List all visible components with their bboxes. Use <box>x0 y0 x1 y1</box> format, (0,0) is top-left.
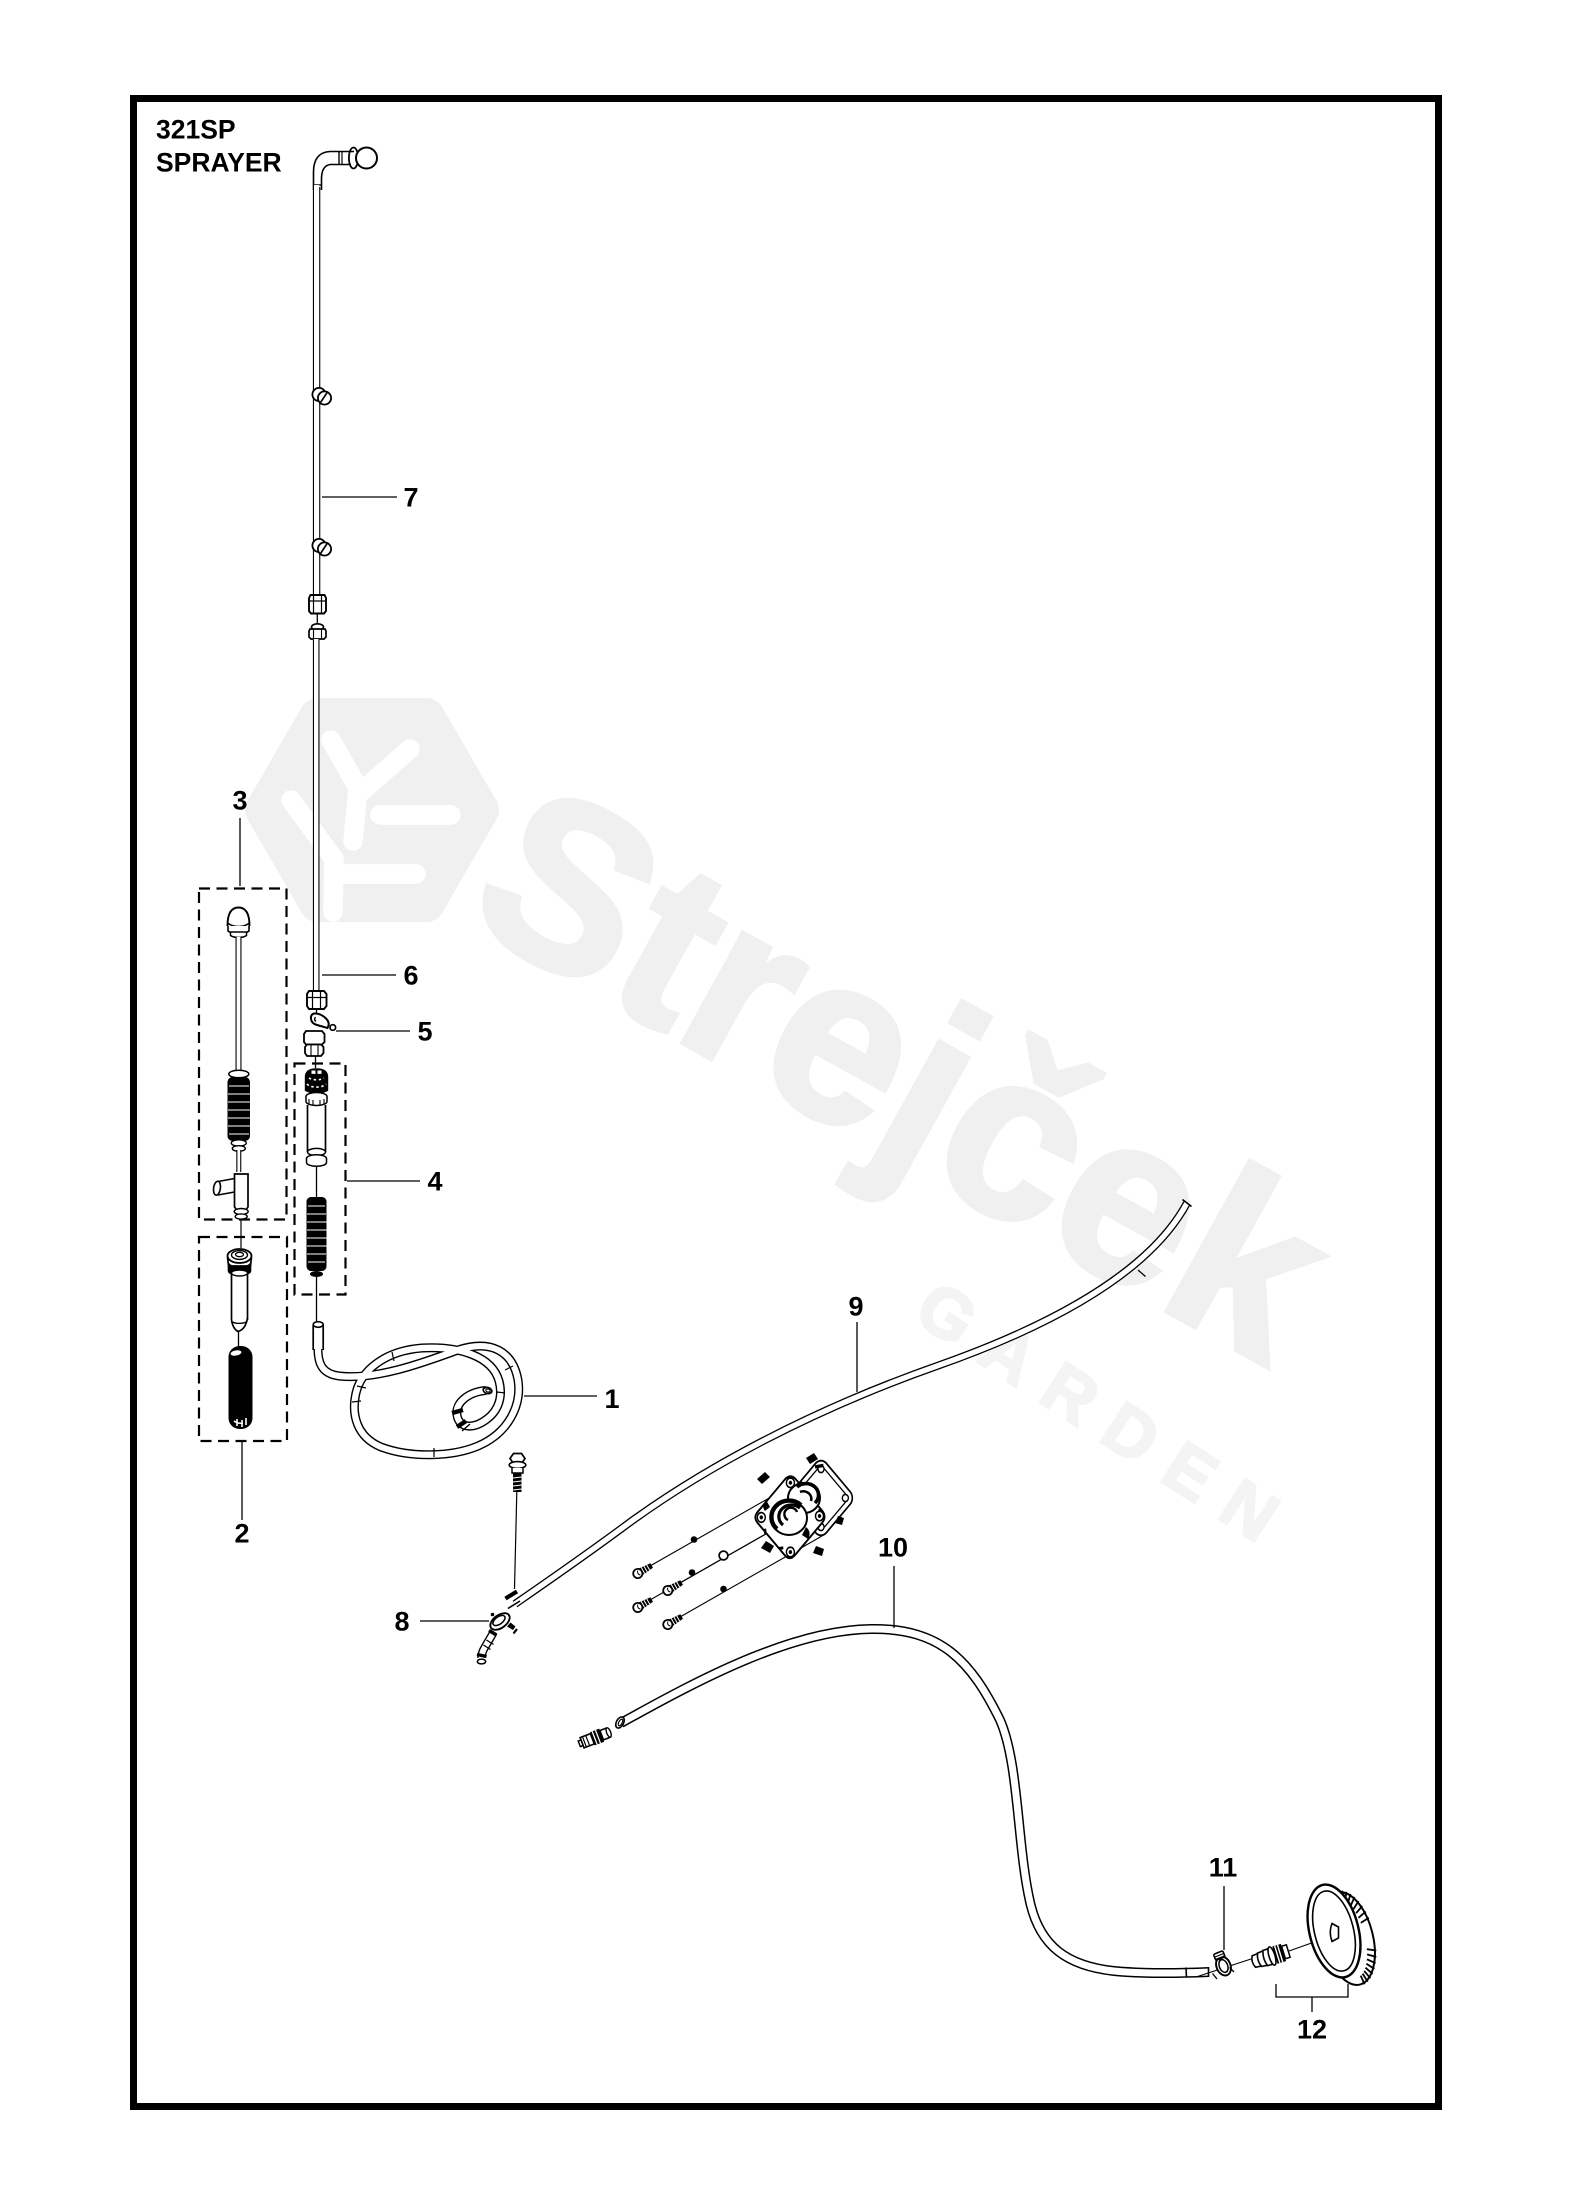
svg-text:12: 12 <box>1297 2015 1327 2045</box>
svg-text:6: 6 <box>403 961 418 991</box>
svg-text:2: 2 <box>234 1519 249 1549</box>
svg-text:3: 3 <box>232 786 247 816</box>
svg-text:5: 5 <box>417 1017 432 1047</box>
svg-text:11: 11 <box>1209 1853 1238 1883</box>
svg-text:4: 4 <box>427 1167 442 1197</box>
svg-text:8: 8 <box>394 1607 409 1637</box>
svg-text:SPRAYER: SPRAYER <box>156 148 282 178</box>
svg-text:7: 7 <box>403 483 418 513</box>
svg-text:9: 9 <box>848 1292 863 1322</box>
svg-text:321SP: 321SP <box>156 115 236 145</box>
svg-text:10: 10 <box>878 1533 908 1563</box>
svg-text:1: 1 <box>604 1384 619 1414</box>
